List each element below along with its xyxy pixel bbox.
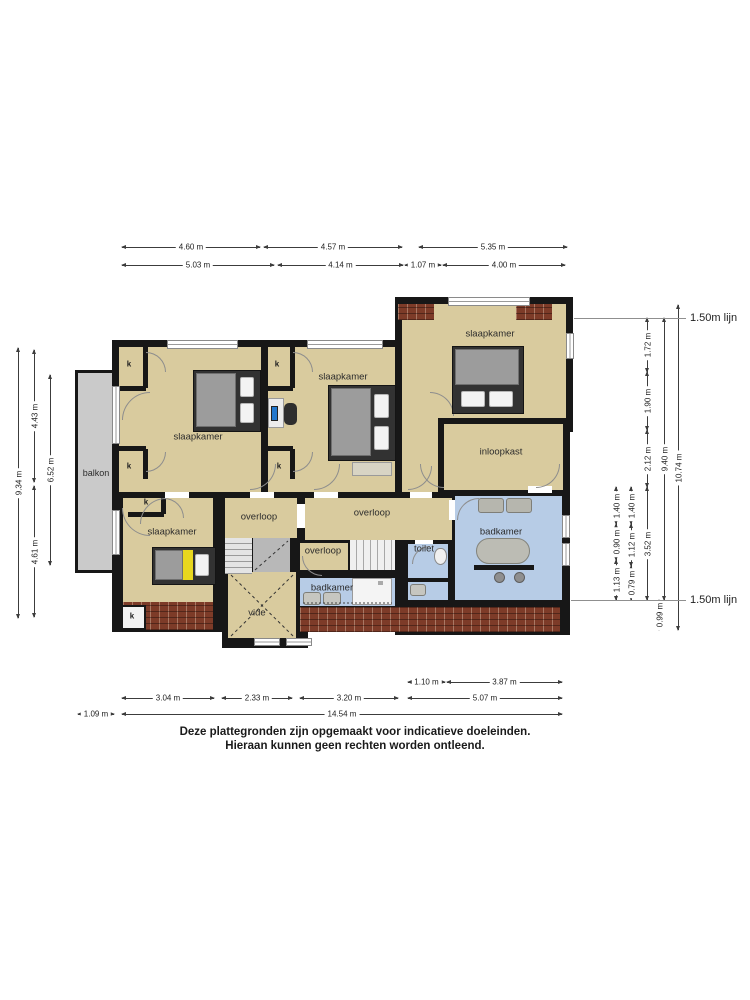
room-vide: [228, 572, 296, 638]
door-gap: [250, 492, 274, 498]
dim-right-main-1: 1.72 m: [643, 318, 652, 372]
bed-single-bottom-left: [152, 547, 216, 585]
brick-zone-bottom-right: [300, 607, 560, 632]
window-right-bedroom: [566, 333, 574, 359]
brick-zone-top-right-b: [516, 304, 552, 320]
washbasin-small-bath-2: [323, 592, 341, 605]
window-vide-bottom-1: [254, 638, 280, 646]
label-slaapkamer-top-left: slaapkamer: [173, 432, 222, 443]
label-kast-5: k: [144, 498, 148, 507]
toilet-bowl: [434, 548, 447, 565]
dim-right-i1-1: 1.40 m: [612, 487, 621, 524]
dim-bottom3-1: 1.09 m: [78, 710, 114, 719]
dim-top1-2: 4.57 m: [264, 243, 402, 252]
label-150-lijn-top: 1.50m lijn: [690, 312, 737, 324]
label-kast-6: k: [130, 612, 134, 621]
shower-head-2: [514, 572, 525, 583]
label-balkon: balkon: [83, 468, 110, 478]
vanity-sink-1: [478, 498, 504, 513]
dim-right-i2-2: 1.12 m: [627, 524, 636, 566]
line-150-bottom: [571, 600, 686, 601]
dim-right-span: 9.40 m: [660, 318, 669, 600]
label-kast-1: k: [127, 360, 131, 369]
label-overloop-small: overloop: [305, 546, 341, 557]
dim-bottom2-1: 3.04 m: [122, 694, 214, 703]
dim-right-main-2: 1.90 m: [643, 372, 652, 430]
room-overloop-mid: [305, 498, 452, 540]
label-overloop-left: overloop: [241, 512, 277, 523]
shower-head-1: [494, 572, 505, 583]
label-kast-4: k: [277, 462, 281, 471]
dim-bottom2-4: 5.07 m: [408, 694, 562, 703]
dim-left-upper: 4.43 m: [30, 350, 39, 482]
dim-right-main-5: 0.99 m: [655, 600, 664, 630]
dim-left-lower: 4.61 m: [30, 486, 39, 617]
disclaimer-line-1: Deze plattegronden zijn opgemaakt voor i…: [80, 726, 630, 738]
window-top-left-room: [167, 340, 238, 349]
window-bathroom-right-2: [562, 543, 570, 566]
bathtub: [476, 538, 530, 564]
dim-bottom1-2: 3.87 m: [447, 678, 562, 687]
label-vide: vide: [248, 608, 265, 619]
dim-top2-3: 1.07 m: [405, 261, 441, 270]
label-overloop-mid: overloop: [354, 508, 390, 519]
door-gap: [297, 504, 305, 528]
label-kast-2: k: [127, 462, 131, 471]
shower-control: [378, 581, 383, 585]
dim-top1-3: 5.35 m: [419, 243, 567, 252]
brick-zone-top-right-a: [398, 304, 434, 320]
label-slaapkamer-top-middle: slaapkamer: [318, 372, 367, 383]
dim-bottom2-3: 3.20 m: [300, 694, 398, 703]
dim-left-total: 9.34 m: [14, 348, 23, 618]
dim-bottom3-2: 14.54 m: [122, 710, 562, 719]
stairs-landing: [253, 538, 290, 572]
label-toilet: toilet: [414, 544, 434, 555]
closet-wall: [119, 386, 146, 391]
closet-wall: [119, 446, 146, 451]
desk-monitor: [271, 406, 278, 421]
washbasin-small-bath-1: [303, 592, 321, 605]
window-top-middle-room: [307, 340, 383, 349]
label-inloopkast: inloopkast: [480, 447, 523, 458]
dim-right-main-4: 3.52 m: [643, 487, 652, 600]
dim-right-i2-3: 0.79 m: [627, 566, 636, 600]
window-top-right-room: [448, 297, 530, 306]
stairs-right-flight: [350, 540, 395, 570]
dim-right-full: 10.74 m: [674, 305, 683, 630]
disclaimer-line-2: Hieraan kunnen geen rechten worden ontle…: [80, 740, 630, 752]
bed-bench: [352, 462, 392, 476]
label-kast-3: k: [275, 360, 279, 369]
bed-double-top-middle: [328, 385, 396, 461]
dim-right-i1-3: 1.13 m: [612, 560, 621, 600]
bed-double-top-right: [452, 346, 524, 414]
dim-top2-4: 4.00 m: [443, 261, 565, 270]
door-gap: [449, 500, 455, 520]
door-gap: [314, 492, 338, 498]
dim-right-i2-1: 1.40 m: [627, 487, 636, 524]
dim-bottom1-1: 1.10 m: [408, 678, 445, 687]
dim-top2-1: 5.03 m: [122, 261, 274, 270]
floorplan-page: slaapkamer slaapkamer slaapkamer inloopk…: [0, 0, 750, 1000]
dim-top1-1: 4.60 m: [122, 243, 260, 252]
bed-double-top-left: [193, 370, 261, 432]
window-vide-bottom-2: [286, 638, 312, 646]
balcony-door-window-1: [112, 386, 120, 444]
stairs-left-flight: [225, 538, 252, 574]
line-150-top: [574, 318, 686, 319]
dim-left-balcony: 6.52 m: [46, 375, 55, 565]
balcony-door-window-2: [112, 510, 120, 555]
label-slaapkamer-bottom-left: slaapkamer: [147, 527, 196, 538]
passage-sink: [410, 584, 426, 596]
bathtub-wall: [474, 565, 534, 570]
dim-right-main-3: 2.12 m: [643, 430, 652, 487]
label-badkamer-large: badkamer: [480, 527, 522, 538]
window-bathroom-right-1: [562, 515, 570, 538]
label-slaapkamer-top-right: slaapkamer: [465, 329, 514, 340]
dim-bottom2-2: 2.33 m: [222, 694, 292, 703]
label-150-lijn-bottom: 1.50m lijn: [690, 594, 737, 606]
door-gap: [410, 492, 432, 498]
door-gap: [165, 492, 189, 498]
desk-chair: [284, 403, 297, 425]
dim-top2-2: 4.14 m: [278, 261, 403, 270]
dim-right-i1-2: 0.90 m: [612, 524, 621, 560]
vanity-sink-2: [506, 498, 532, 513]
shower-tray: [352, 578, 392, 605]
label-badkamer-small: badkamer: [311, 583, 353, 594]
